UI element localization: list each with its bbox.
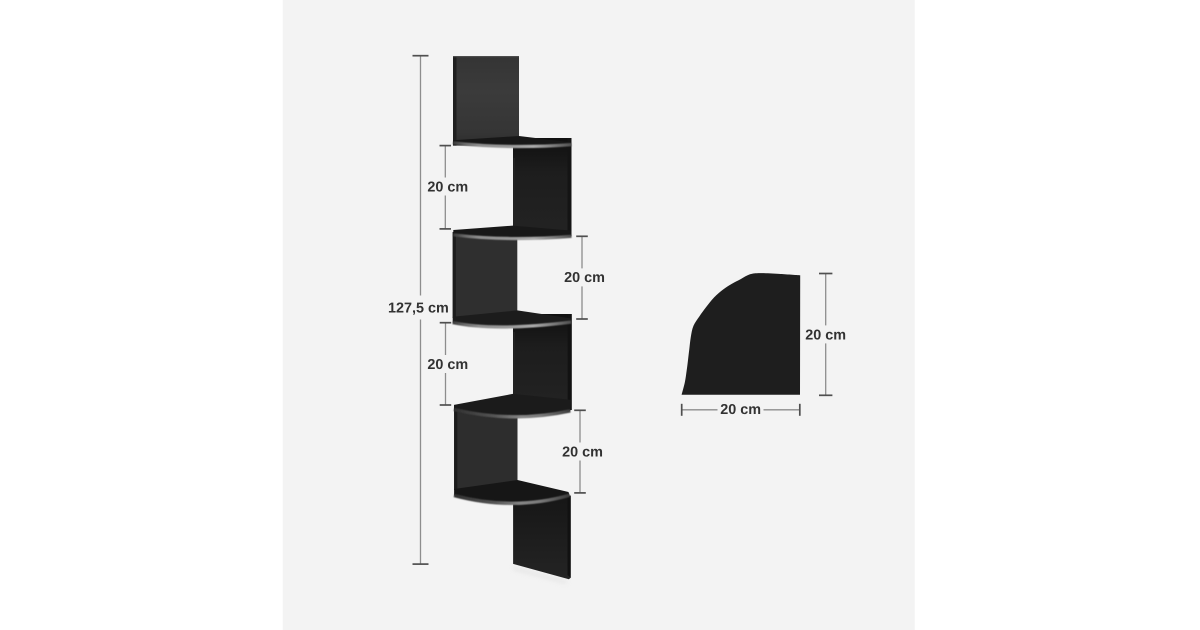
- svg-text:20 cm: 20 cm: [805, 328, 846, 344]
- svg-text:127,5 cm: 127,5 cm: [388, 301, 449, 317]
- svg-text:20 cm: 20 cm: [564, 270, 605, 286]
- svg-text:20 cm: 20 cm: [427, 357, 468, 373]
- svg-text:20 cm: 20 cm: [720, 402, 761, 418]
- svg-text:20 cm: 20 cm: [562, 445, 603, 461]
- svg-text:20 cm: 20 cm: [427, 180, 468, 196]
